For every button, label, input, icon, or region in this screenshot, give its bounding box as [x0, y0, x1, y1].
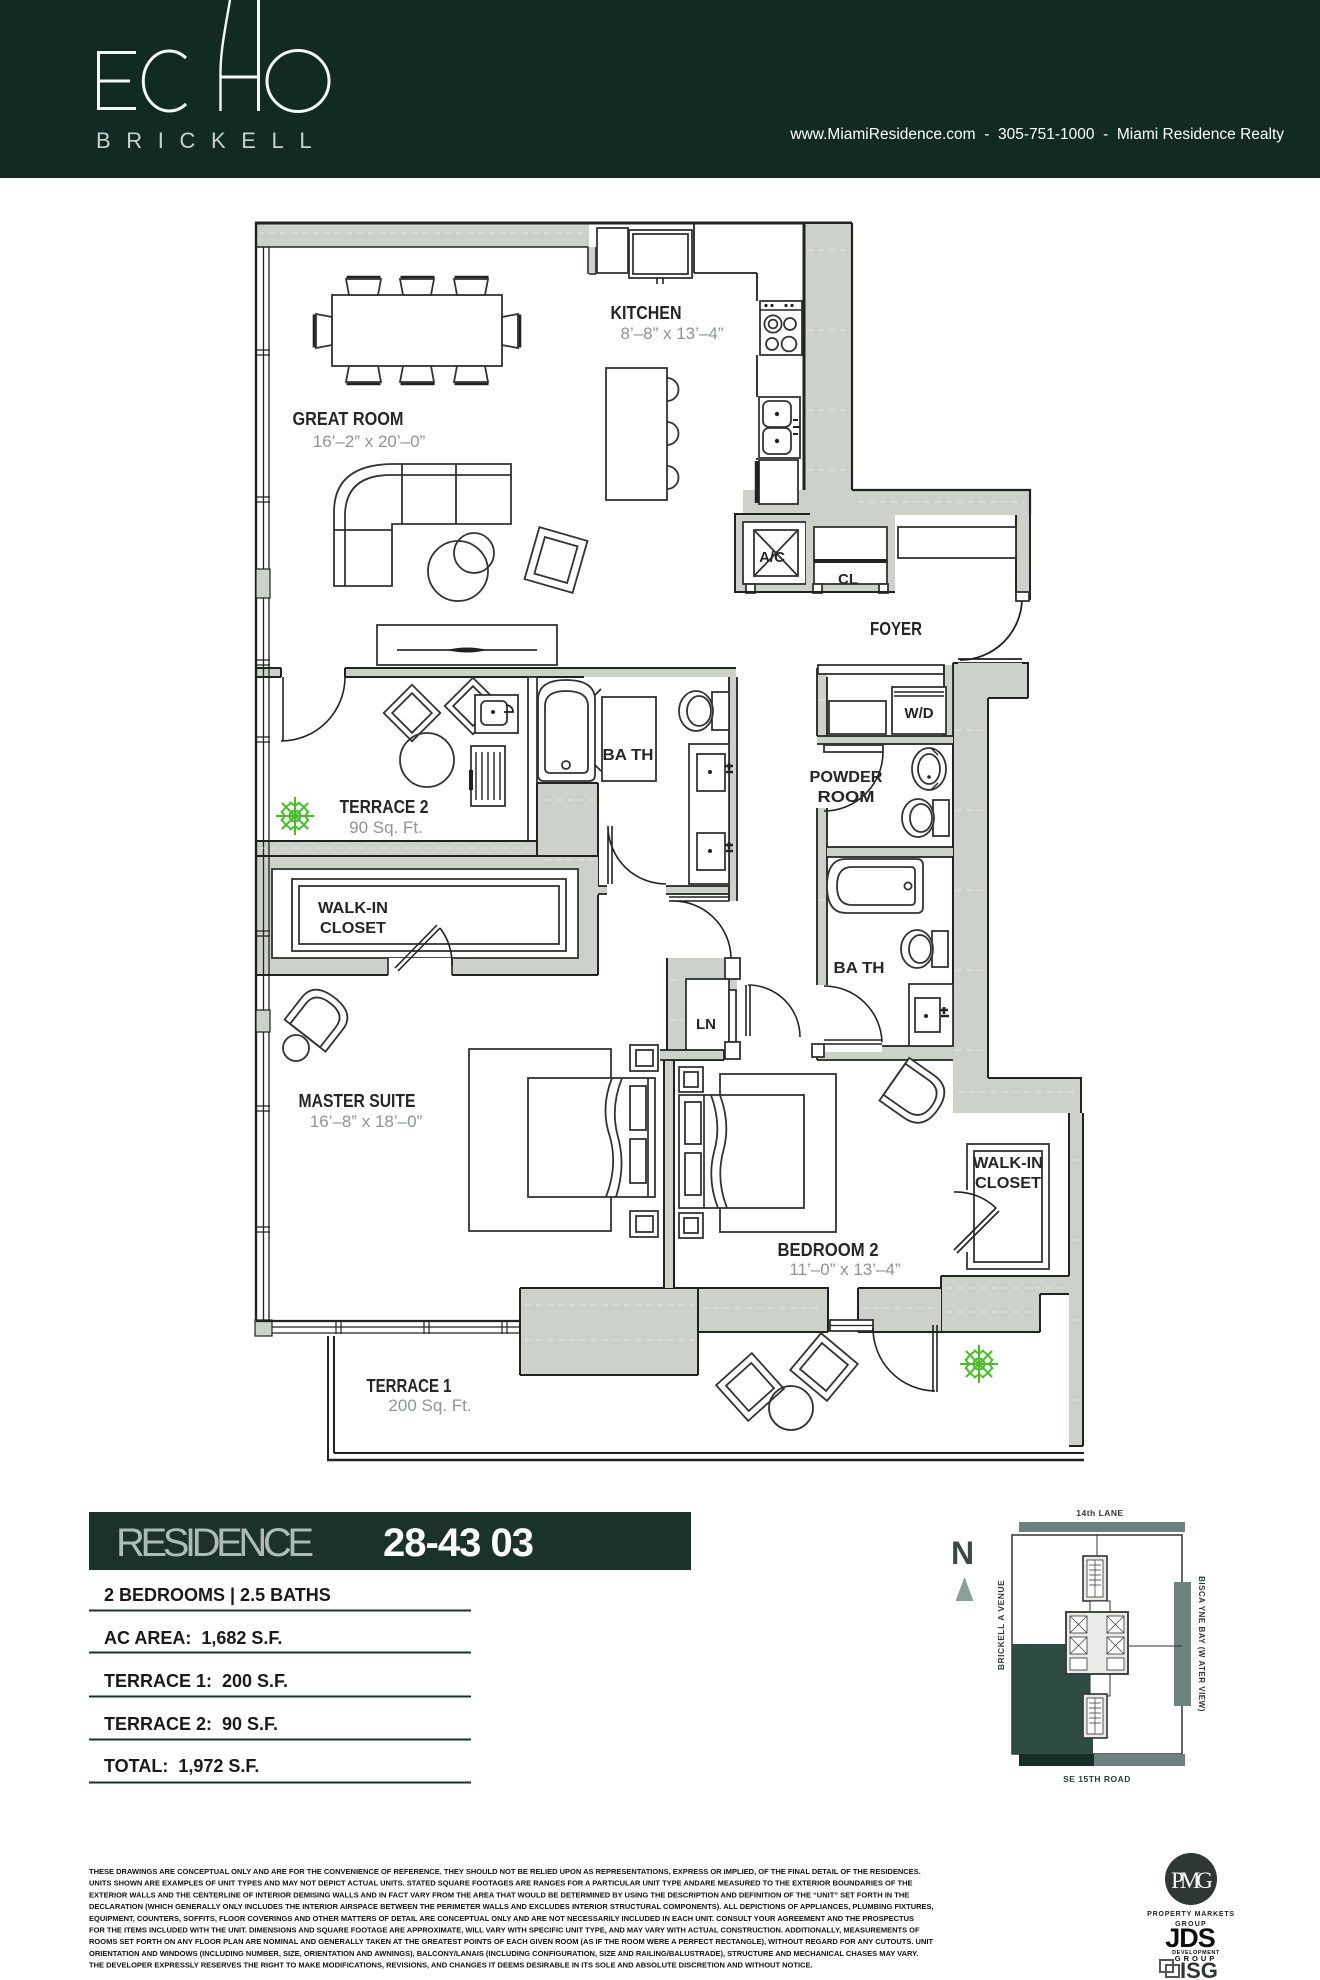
- svg-text:ORIENTATION AND WINDOWS (INCLU: ORIENTATION AND WINDOWS (INCLUDING NUMBE…: [89, 1949, 918, 1958]
- svg-text:PMG: PMG: [1171, 1868, 1212, 1893]
- svg-text:JDS: JDS: [1165, 1923, 1215, 1953]
- svg-text:UNITS SHOWN ARE EXAMPLES OF UN: UNITS SHOWN ARE EXAMPLES OF UNIT TYPES A…: [89, 1879, 913, 1888]
- svg-text:200 Sq. Ft.: 200 Sq. Ft.: [388, 1396, 471, 1415]
- svg-text:BA TH: BA TH: [834, 960, 885, 977]
- svg-text:FOR THE ITEMS INCLUDED WITH TH: FOR THE ITEMS INCLUDED WITH THE UNIT. DI…: [89, 1926, 920, 1935]
- svg-text:THESE DRAWINGS ARE CONCEPTUAL: THESE DRAWINGS ARE CONCEPTUAL ONLY AND A…: [89, 1867, 921, 1876]
- svg-text:16’–2” x 20’–0”: 16’–2” x 20’–0”: [313, 432, 426, 451]
- svg-text:28-43 03: 28-43 03: [383, 1521, 534, 1565]
- svg-text:2 BEDROOMS | 2.5 BATHS: 2 BEDROOMS | 2.5 BATHS: [104, 1585, 331, 1605]
- svg-text:TOTAL: 1,972 S.F.: TOTAL: 1,972 S.F.: [104, 1756, 259, 1776]
- svg-text:AC AREA: 1,682 S.F.: AC AREA: 1,682 S.F.: [104, 1628, 282, 1648]
- svg-text:CLOSET: CLOSET: [320, 920, 386, 937]
- svg-text:90 Sq. Ft.: 90 Sq. Ft.: [349, 818, 423, 837]
- svg-text:SE 15TH ROAD: SE 15TH ROAD: [1063, 1774, 1131, 1784]
- svg-text:LN: LN: [696, 1016, 716, 1033]
- svg-text:ROOM: ROOM: [818, 789, 875, 806]
- svg-text:TERRACE 2: TERRACE 2: [340, 797, 429, 817]
- svg-text:KITCHEN: KITCHEN: [611, 303, 682, 323]
- svg-text:N: N: [951, 1535, 974, 1571]
- svg-text:BRICKELL: BRICKELL: [96, 128, 327, 153]
- svg-text:11’–0” x 13’–4”: 11’–0” x 13’–4”: [789, 1260, 901, 1279]
- svg-text:14th LANE: 14th LANE: [1076, 1508, 1123, 1518]
- svg-text:CLOSET: CLOSET: [975, 1175, 1041, 1192]
- svg-text:EXTERIOR WALLS AND THE CENTERL: EXTERIOR WALLS AND THE CENTERLINE OF INT…: [89, 1890, 909, 1899]
- svg-text:8’–8” x 13’–4”: 8’–8” x 13’–4”: [620, 324, 723, 343]
- svg-text:PROPERTY MARKETS: PROPERTY MARKETS: [1147, 1911, 1235, 1918]
- svg-text:ISG: ISG: [1180, 1958, 1218, 1980]
- svg-text:CL: CL: [838, 571, 858, 588]
- svg-text:BEDROOM 2: BEDROOM 2: [778, 1240, 879, 1260]
- svg-text:A/C: A/C: [759, 549, 785, 566]
- svg-text:DECLARATION (WHICH GENERALLY O: DECLARATION (WHICH GENERALLY ONLY INCLUD…: [89, 1902, 934, 1911]
- svg-text:WALK-IN: WALK-IN: [973, 1155, 1043, 1172]
- svg-text:THE DEVELOPER EXPRESSLY RESERV: THE DEVELOPER EXPRESSLY RESERVES THE RIG…: [89, 1961, 813, 1970]
- svg-text:RESIDENCE: RESIDENCE: [116, 1521, 314, 1565]
- svg-text:MASTER SUITE: MASTER SUITE: [299, 1091, 416, 1111]
- svg-text:BISCA YNE BAY (W ATER VIEW): BISCA YNE BAY (W ATER VIEW): [1197, 1576, 1206, 1712]
- svg-text:16’–8” x 18’–0”: 16’–8” x 18’–0”: [310, 1112, 423, 1131]
- svg-text:GREAT ROOM: GREAT ROOM: [293, 409, 404, 429]
- svg-text:EQUIPMENT, COUNTERS, SOFFITS,: EQUIPMENT, COUNTERS, SOFFITS, FLOOR COVE…: [89, 1914, 914, 1923]
- svg-text:TERRACE 1: 200 S.F.: TERRACE 1: 200 S.F.: [104, 1671, 288, 1691]
- svg-text:TERRACE 2: 90 S.F.: TERRACE 2: 90 S.F.: [104, 1714, 278, 1734]
- svg-text:BRICKELL A VENUE: BRICKELL A VENUE: [996, 1580, 1006, 1670]
- svg-text:FOYER: FOYER: [870, 619, 922, 639]
- svg-text:POWDER: POWDER: [810, 769, 883, 786]
- svg-text:www.MiamiResidence.com - 305: www.MiamiResidence.com - 305-751-1000 - …: [789, 126, 1284, 143]
- svg-text:ROOMS SET FORTH ON ANY FLOOR P: ROOMS SET FORTH ON ANY FLOOR PLAN ARE NO…: [89, 1937, 933, 1946]
- svg-text:W/D: W/D: [904, 705, 933, 722]
- svg-text:WALK-IN: WALK-IN: [318, 900, 388, 917]
- svg-text:TERRACE 1: TERRACE 1: [367, 1376, 452, 1396]
- svg-text:BA TH: BA TH: [603, 747, 654, 764]
